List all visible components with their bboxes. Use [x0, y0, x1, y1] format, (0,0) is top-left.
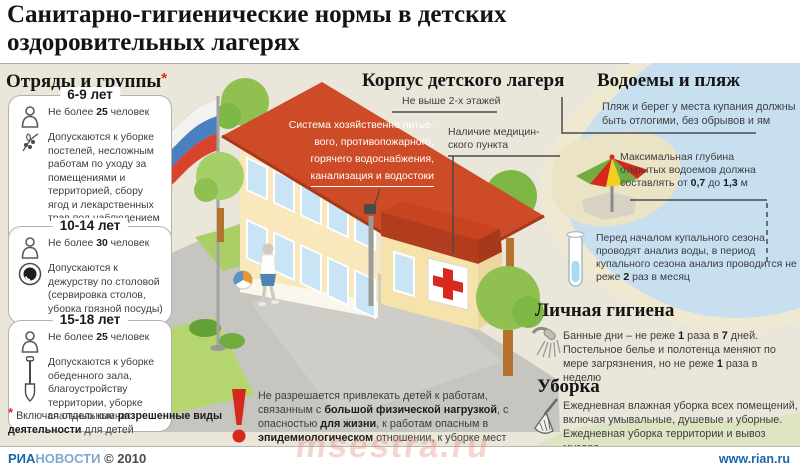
watermark: msestra.ru — [293, 427, 492, 466]
floors-note: Не выше 2-х этажей — [402, 95, 501, 108]
plate-icon — [17, 262, 43, 316]
beach-note: Пляж и берег у места купания должны быть… — [602, 100, 800, 128]
page-title: Санитарно-гигиенические нормы в детских … — [7, 1, 607, 57]
age-label: 10-14 лет — [53, 218, 128, 233]
groups-footnote: *Включая отдельные разрешенные виды деят… — [8, 404, 228, 438]
building-heading: Корпус детского лагеря — [362, 70, 564, 92]
broom-icon — [531, 398, 561, 443]
roof-systems-note: Система хозяйственно питье- вого, против… — [252, 117, 434, 187]
footnote-asterisk: * — [8, 405, 13, 420]
medical-point-note: Наличие медицин- ского пункта — [448, 126, 558, 152]
copyright: © 2010 — [104, 451, 146, 466]
hygiene-heading: Личная гигиена — [535, 300, 674, 322]
test-tube-icon — [567, 232, 584, 286]
cleaning-heading: Уборка — [537, 376, 600, 398]
group-limit: Не более 25 человек — [48, 331, 163, 353]
person-icon — [17, 106, 43, 128]
infographic-page: Санитарно-гигиенические нормы в детских … — [0, 0, 800, 468]
water-heading: Водоемы и пляж — [597, 70, 740, 92]
footnote-asterisk: * — [161, 70, 167, 87]
bush — [189, 319, 221, 337]
site-link[interactable]: www.rian.ru — [719, 452, 790, 466]
person-icon — [17, 237, 43, 259]
person-icon — [17, 331, 43, 353]
ball-icon — [233, 271, 252, 289]
exclamation-icon — [228, 388, 250, 449]
water-analysis-note: Перед началом купального сезона проводят… — [596, 232, 800, 285]
age-label: 6-9 лет — [60, 87, 120, 102]
group-limit: Не более 25 человек — [48, 106, 163, 128]
berries-icon — [17, 131, 43, 239]
group-limit: Не более 30 человек — [48, 237, 163, 259]
depth-note: Максимальная глубина открытых водоемов д… — [620, 151, 772, 190]
group-box-10-14: 10-14 лет Не более 30 человек Допускаютс… — [8, 226, 172, 324]
shower-icon — [531, 325, 561, 372]
ria-novosti-logo: РИАНОВОСТИ © 2010 — [8, 451, 146, 466]
age-label: 15-18 лет — [53, 312, 128, 327]
group-task: Допускаются к дежурству по столовой (сер… — [48, 262, 163, 316]
